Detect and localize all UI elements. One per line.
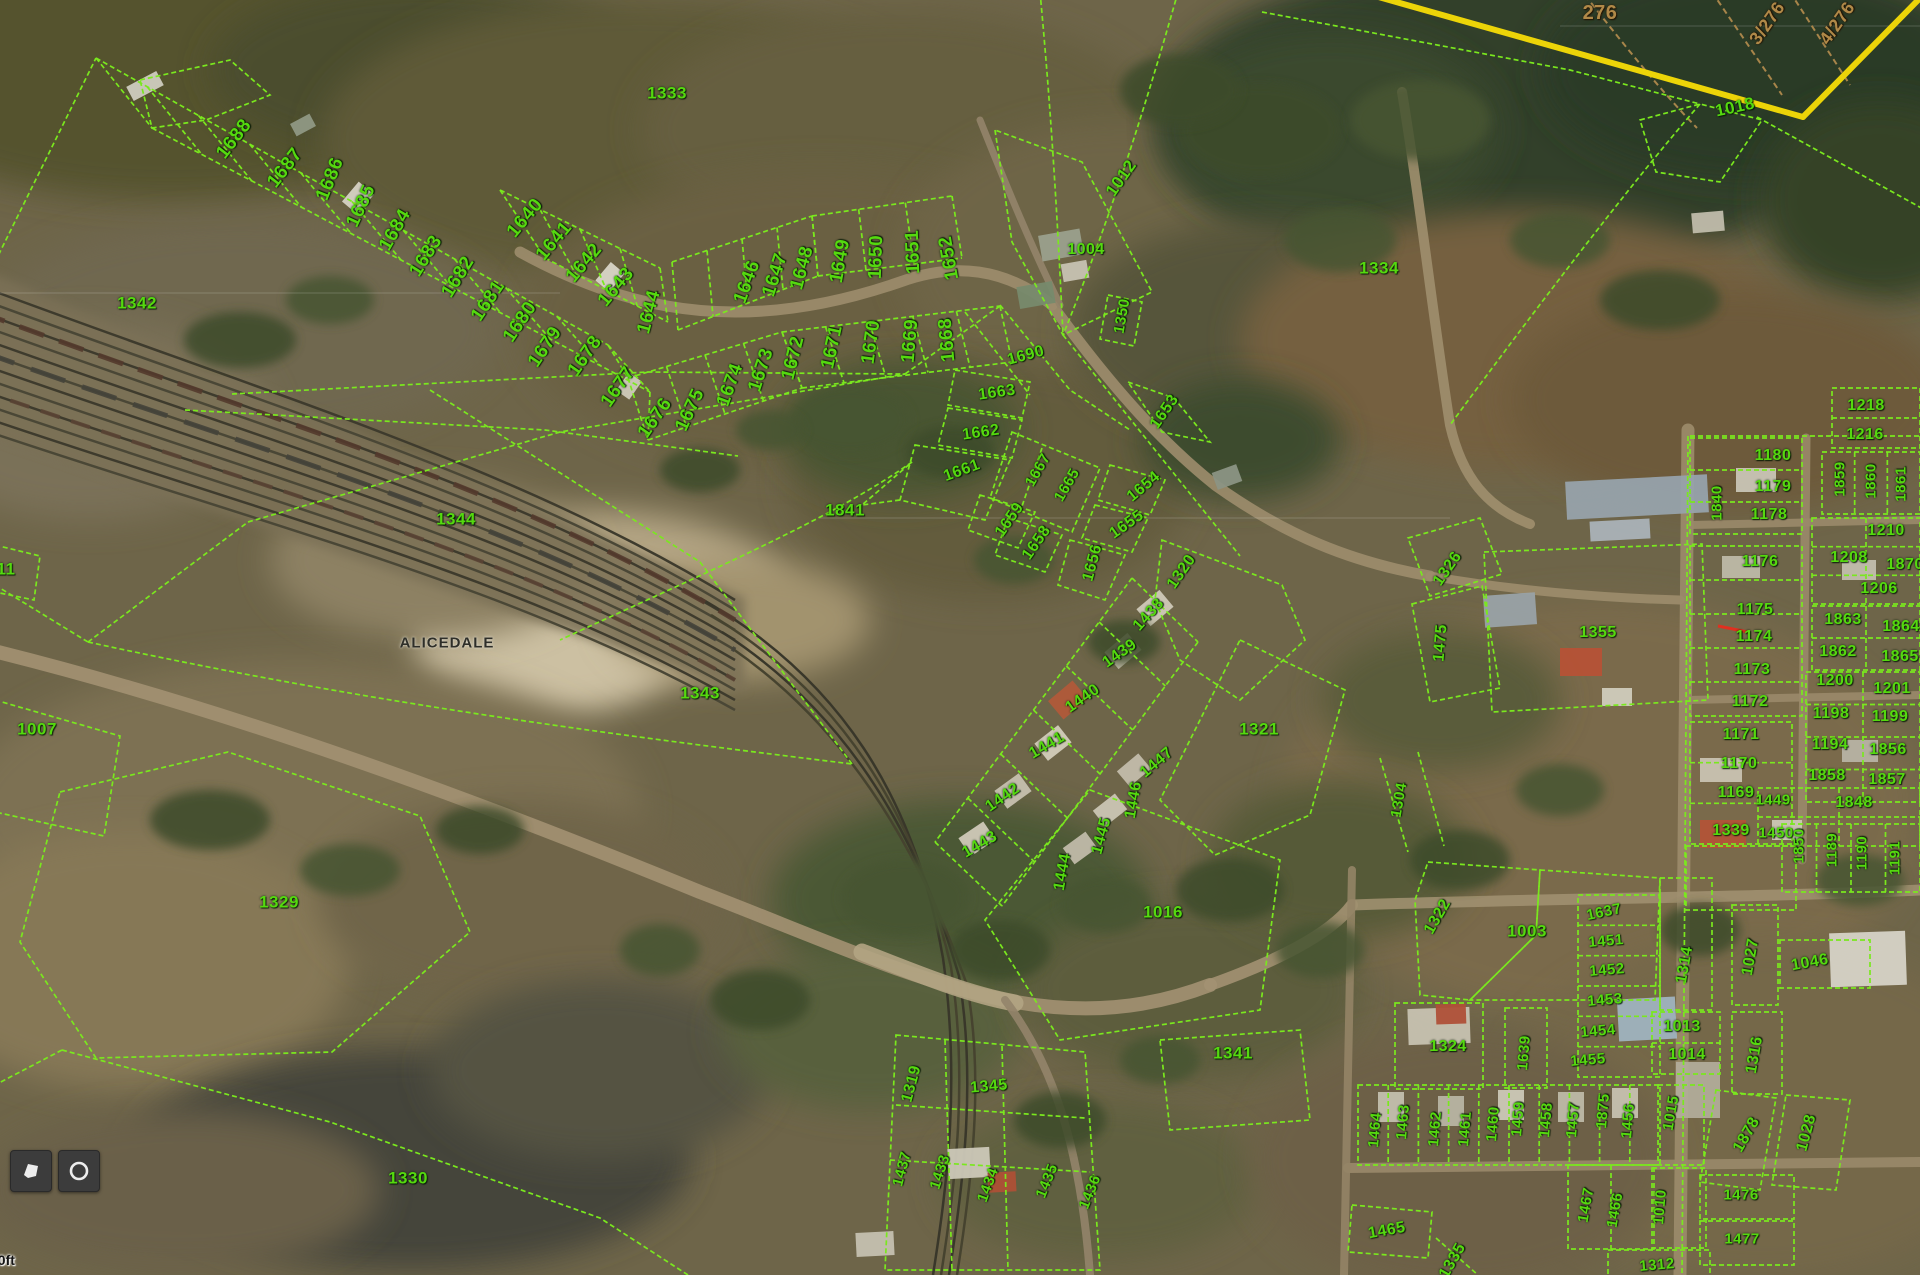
parcel-label: 1028 bbox=[1794, 1113, 1819, 1153]
parcel-label: 1345 bbox=[970, 1077, 1009, 1096]
parcel-label: 1355 bbox=[1579, 625, 1617, 641]
parcel-label: 1840 bbox=[1710, 485, 1725, 520]
parcel-label: 1875 bbox=[1594, 1093, 1612, 1130]
parcel-label: 1450 bbox=[1758, 826, 1793, 841]
polygon-icon bbox=[19, 1159, 43, 1183]
parcel-label: 1841 bbox=[825, 502, 865, 519]
parcel-label: 1459 bbox=[1509, 1101, 1527, 1138]
parcel-label: 1467 bbox=[1576, 1186, 1597, 1223]
parcel-label: 1462 bbox=[1426, 1111, 1444, 1148]
parcel-label: 1670 bbox=[859, 319, 884, 365]
parcel-label: 1341 bbox=[1213, 1045, 1253, 1062]
parcel-label: 1444 bbox=[1052, 852, 1074, 892]
parcel-label: 1865 bbox=[1881, 649, 1919, 665]
parcel-label: 1018 bbox=[1714, 95, 1756, 120]
parcel-label: 1671 bbox=[818, 323, 846, 370]
parcel-label: 1449 bbox=[1755, 793, 1790, 808]
parcel-label: 1333 bbox=[647, 85, 687, 102]
parcel-label: 1016 bbox=[1143, 904, 1183, 921]
parcel-label: 1189 bbox=[1825, 833, 1840, 868]
parcel-label: 1878 bbox=[1731, 1115, 1764, 1156]
parcel-label: 1658 bbox=[1020, 523, 1055, 563]
parcel-label: 4/276 bbox=[1816, 0, 1858, 48]
parcel-label: 1676 bbox=[635, 394, 676, 441]
place-name-label: ALICEDALE bbox=[400, 635, 495, 652]
parcel-label: 1329 bbox=[259, 894, 299, 911]
parcel-label: 1443 bbox=[960, 829, 1001, 862]
locate-button[interactable] bbox=[58, 1150, 100, 1192]
parcel-label: 1859 bbox=[1833, 461, 1848, 496]
parcel-label: 1639 bbox=[1515, 1035, 1533, 1072]
parcel-label: 1454 bbox=[1580, 1022, 1617, 1040]
parcel-label: 1476 bbox=[1723, 1188, 1758, 1203]
parcel-label: 1465 bbox=[1367, 1220, 1407, 1242]
parcel-label: 1461 bbox=[1456, 1111, 1474, 1148]
parcel-label: 1464 bbox=[1366, 1112, 1384, 1149]
parcel-label: 1216 bbox=[1846, 427, 1884, 443]
parcel-label: 1687 bbox=[264, 145, 306, 192]
parcel-label: 1477 bbox=[1724, 1232, 1759, 1247]
parcel-label: 1046 bbox=[1790, 952, 1830, 974]
parcel-label: 1013 bbox=[1663, 1019, 1701, 1035]
parcel-label: 1343 bbox=[680, 685, 720, 702]
parcel-label: 1027 bbox=[1740, 937, 1762, 977]
scale-bar-label: 00ft bbox=[0, 1252, 15, 1268]
parcel-label: 1174 bbox=[1736, 629, 1773, 645]
parcel-label-layer: 1688168716861685168416831682168116801679… bbox=[0, 0, 1920, 1275]
parcel-label: 1334 bbox=[1359, 260, 1399, 277]
parcel-label: 1460 bbox=[1484, 1106, 1502, 1143]
parcel-label: 1304 bbox=[1389, 781, 1410, 818]
parcel-label: 1435 bbox=[1033, 1162, 1060, 1200]
parcel-label: 1440 bbox=[1063, 682, 1103, 717]
parcel-label: 1436 bbox=[1076, 1173, 1103, 1211]
parcel-label: 1677 bbox=[598, 363, 639, 410]
parcel-label: 1437 bbox=[890, 1150, 914, 1188]
parcel-label: 1208 bbox=[1830, 550, 1868, 566]
parcel-label: 1200 bbox=[1816, 673, 1854, 689]
parcel-label: 1320 bbox=[1165, 552, 1200, 592]
parcel-label: 1175 bbox=[1737, 602, 1774, 618]
parcel-label: 1647 bbox=[759, 251, 791, 299]
parcel-label: 1344 bbox=[436, 511, 476, 528]
parcel-label: 1458 bbox=[1537, 1102, 1555, 1139]
parcel-label: 1451 bbox=[1588, 932, 1625, 950]
parcel-label: 1350 bbox=[1112, 297, 1133, 334]
parcel-label: 1445 bbox=[1089, 816, 1114, 856]
parcel-label: 1858 bbox=[1808, 768, 1846, 784]
parcel-label: 1669 bbox=[899, 318, 922, 364]
parcel-label: 1475 bbox=[1431, 624, 1450, 663]
parcel-label: 1198 bbox=[1813, 706, 1850, 722]
parcel-label: 1452 bbox=[1589, 961, 1626, 979]
parcel-label: 1679 bbox=[525, 323, 566, 370]
parcel-label: 1688 bbox=[213, 116, 255, 163]
parcel-label: 1012 bbox=[1103, 157, 1140, 199]
parcel-label: 1648 bbox=[787, 244, 817, 292]
locate-icon bbox=[66, 1158, 92, 1184]
parcel-label: 1685 bbox=[343, 182, 379, 230]
parcel-label: 1442 bbox=[983, 781, 1023, 816]
parcel-label: 1210 bbox=[1867, 523, 1905, 539]
parcel-label: 1007 bbox=[17, 721, 57, 738]
parcel-label: 1171 bbox=[1723, 727, 1760, 743]
parcel-label: 1663 bbox=[977, 382, 1016, 403]
parcel-label: 1194 bbox=[1812, 737, 1849, 753]
parcel-label: 1680 bbox=[500, 298, 541, 345]
parcel-label: 1433 bbox=[927, 1153, 952, 1191]
parcel-label: 1651 bbox=[903, 230, 924, 275]
parcel-label: 1644 bbox=[634, 288, 664, 336]
parcel-label: 1654 bbox=[1124, 469, 1163, 505]
parcel-label: 1857 bbox=[1868, 772, 1906, 788]
parcel-label: 1672 bbox=[778, 334, 807, 382]
parcel-label: 1339 bbox=[1712, 823, 1750, 839]
parcel-label: 1453 bbox=[1587, 991, 1624, 1009]
map-controls bbox=[10, 1150, 100, 1192]
parcel-label: 1447 bbox=[1137, 745, 1176, 781]
parcel-label: 1191 bbox=[1888, 841, 1903, 876]
parcel-label: 1312 bbox=[1639, 1256, 1676, 1274]
parcel-label: 1673 bbox=[745, 346, 777, 394]
parcel-label: 1316 bbox=[1744, 1035, 1766, 1075]
parcel-label: 1169 bbox=[1718, 785, 1755, 801]
parcel-label: 1684 bbox=[376, 206, 415, 254]
parcel-label: 1218 bbox=[1847, 398, 1885, 414]
parcel-label: 1010 bbox=[1651, 1189, 1669, 1226]
parcel-label: 276 bbox=[1583, 3, 1618, 23]
parcel-label: 1004 bbox=[1067, 242, 1105, 258]
parcel-label: 1322 bbox=[1422, 897, 1455, 938]
parcel-label: 1438 bbox=[1130, 596, 1167, 635]
parcel-label: 1686 bbox=[313, 155, 347, 203]
parcel-label: 1655 bbox=[1107, 508, 1147, 543]
parcel-label: 1642 bbox=[562, 240, 605, 286]
parcel-label: 1662 bbox=[961, 422, 1000, 443]
parcel-label: 1683 bbox=[406, 232, 446, 280]
parcel-label: 1641 bbox=[532, 218, 575, 264]
parcel-label: 1675 bbox=[672, 386, 708, 434]
parcel-label: 1457 bbox=[1564, 1102, 1582, 1139]
parcel-label: 1190 bbox=[1855, 836, 1870, 871]
parcel-label: 1319 bbox=[899, 1064, 924, 1104]
parcel-label: 1681 bbox=[468, 277, 509, 324]
parcel-label: 1674 bbox=[714, 361, 747, 409]
parcel-label: 1466 bbox=[1605, 1191, 1626, 1228]
parcel-label: 1170 bbox=[1721, 756, 1758, 772]
parcel-label: 1180 bbox=[1755, 448, 1792, 464]
parcel-label: 1342 bbox=[117, 295, 157, 312]
parcel-label: 1659 bbox=[993, 500, 1028, 540]
parcel-label: 1661 bbox=[942, 457, 983, 485]
parcel-label: 1335 bbox=[1437, 1241, 1470, 1275]
parcel-label: 1314 bbox=[1674, 945, 1696, 985]
parcel-label: 1640 bbox=[503, 195, 546, 241]
parcel-label: 1206 bbox=[1860, 581, 1898, 597]
parcel-label: 1690 bbox=[1006, 343, 1046, 368]
parcel-label: 1863 bbox=[1824, 612, 1862, 628]
parcel-label: 1003 bbox=[1507, 923, 1547, 940]
parcel-label: 1649 bbox=[827, 238, 853, 285]
parcel-label: 1850 bbox=[1792, 828, 1807, 863]
parcel-label: 1172 bbox=[1732, 694, 1769, 710]
parcel-label: 1864 bbox=[1882, 619, 1920, 635]
parcel-label: 1015 bbox=[1661, 1094, 1682, 1131]
parcel-label: 3/276 bbox=[1746, 0, 1788, 48]
parcel-label: 1330 bbox=[388, 1170, 428, 1187]
parcel-label: 1173 bbox=[1734, 662, 1771, 678]
parcel-label: 1860 bbox=[1864, 463, 1879, 498]
parcel-label: 1646 bbox=[731, 258, 764, 306]
parcel-label: 1643 bbox=[594, 264, 637, 310]
parcel-label: 1014 bbox=[1668, 1047, 1706, 1063]
parcel-label: 1656 bbox=[1080, 543, 1105, 583]
parcel-label: 1682 bbox=[438, 253, 478, 301]
parcel-label: 1201 bbox=[1873, 681, 1911, 697]
parcel-label: 1862 bbox=[1819, 644, 1857, 660]
parcel-label: 1176 bbox=[1742, 554, 1779, 570]
parcel-label: 1870 bbox=[1886, 557, 1920, 573]
parcel-label: 1456 bbox=[1619, 1103, 1637, 1140]
parcel-label: 11 bbox=[0, 561, 15, 578]
parcel-label: 1324 bbox=[1429, 1039, 1467, 1055]
parcel-label: 1667 bbox=[1023, 451, 1054, 489]
parcel-label: 1861 bbox=[1894, 466, 1909, 501]
parcel-label: 1678 bbox=[565, 332, 606, 379]
parcel-label: 1637 bbox=[1585, 901, 1623, 923]
parcel-label: 1463 bbox=[1394, 1104, 1412, 1141]
polygon-tool-button[interactable] bbox=[10, 1150, 52, 1192]
parcel-label: 1441 bbox=[1027, 730, 1068, 763]
parcel-label: 1178 bbox=[1751, 507, 1788, 523]
parcel-label: 1321 bbox=[1239, 721, 1279, 738]
parcel-label: 1856 bbox=[1869, 742, 1907, 758]
parcel-label: 1434 bbox=[975, 1166, 1001, 1204]
parcel-label: 1653 bbox=[1148, 392, 1183, 432]
parcel-label: 1665 bbox=[1052, 466, 1083, 504]
parcel-label: 1326 bbox=[1431, 549, 1466, 589]
parcel-label: 1668 bbox=[936, 317, 959, 363]
parcel-label: 1652 bbox=[936, 235, 962, 282]
parcel-label: 1446 bbox=[1123, 780, 1145, 820]
parcel-label: 1650 bbox=[866, 235, 887, 280]
parcel-label: 1439 bbox=[1100, 637, 1140, 672]
satellite-map-canvas[interactable]: 1688168716861685168416831682168116801679… bbox=[0, 0, 1920, 1275]
parcel-label: 1848 bbox=[1835, 795, 1873, 811]
parcel-label: 1455 bbox=[1570, 1051, 1607, 1069]
parcel-label: 1179 bbox=[1755, 479, 1792, 495]
parcel-label: 1199 bbox=[1872, 709, 1909, 725]
